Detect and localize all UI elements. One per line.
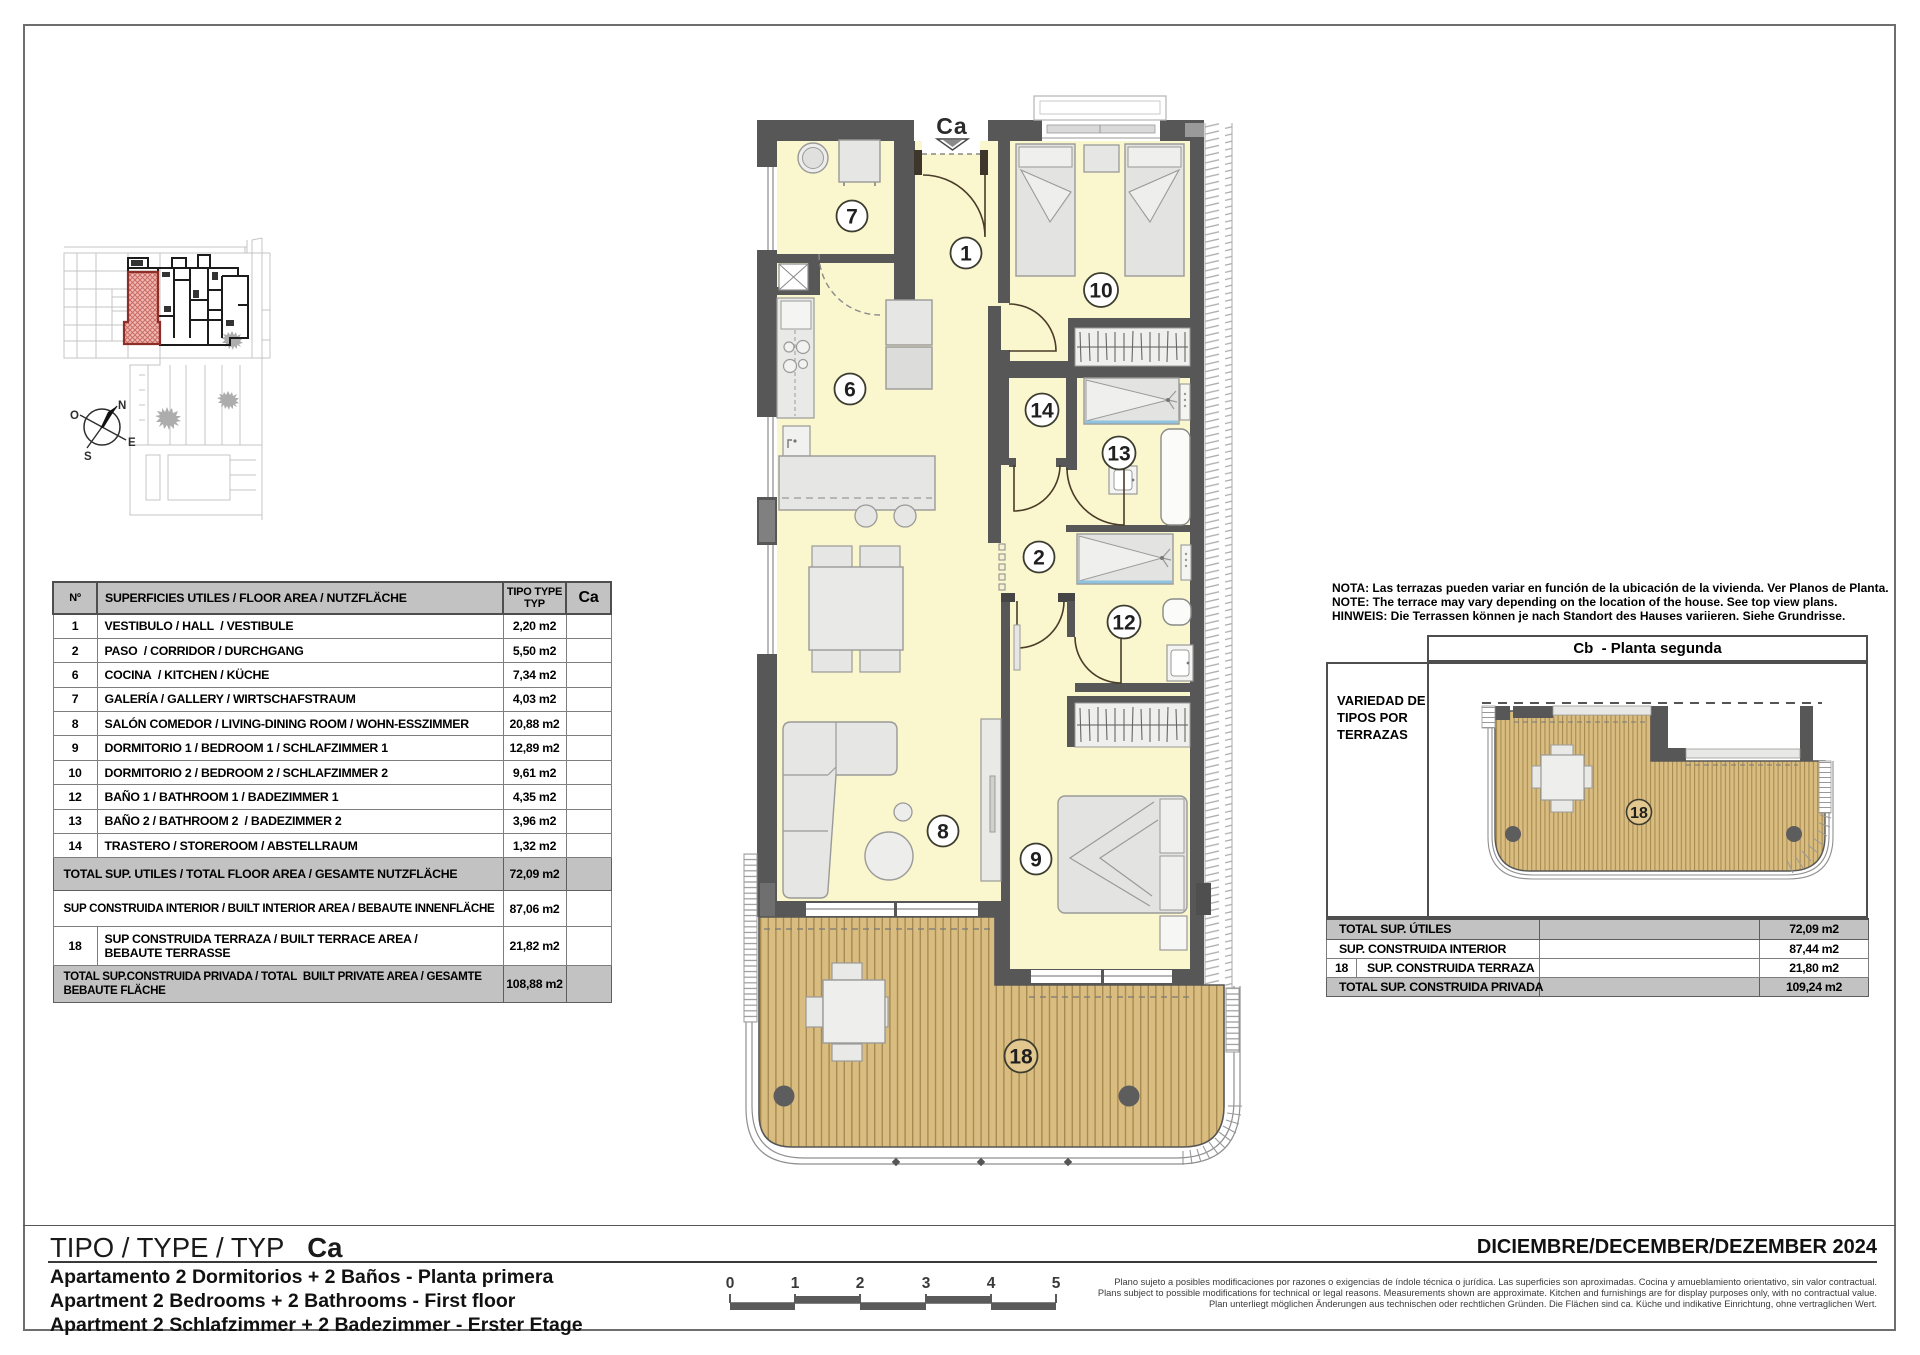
svg-text:8: 8 <box>937 821 949 844</box>
svg-text:3: 3 <box>922 1275 931 1292</box>
svg-text:14: 14 <box>1030 400 1054 423</box>
svg-text:10: 10 <box>1089 280 1112 303</box>
svg-text:2: 2 <box>1033 547 1045 570</box>
svg-text:12: 12 <box>1112 612 1135 635</box>
svg-text:E: E <box>128 437 136 449</box>
svg-text:1: 1 <box>960 243 972 266</box>
svg-text:O: O <box>70 410 79 422</box>
svg-text:6: 6 <box>844 379 856 402</box>
svg-text:0: 0 <box>726 1275 735 1292</box>
svg-text:18: 18 <box>1009 1046 1033 1069</box>
svg-text:Ca: Ca <box>936 113 967 139</box>
svg-text:N: N <box>118 400 126 412</box>
svg-text:9: 9 <box>1030 849 1042 872</box>
svg-text:2: 2 <box>856 1275 865 1292</box>
svg-text:13: 13 <box>1107 443 1130 466</box>
svg-text:7: 7 <box>846 206 858 229</box>
svg-text:S: S <box>84 451 92 463</box>
svg-text:1: 1 <box>791 1275 800 1292</box>
